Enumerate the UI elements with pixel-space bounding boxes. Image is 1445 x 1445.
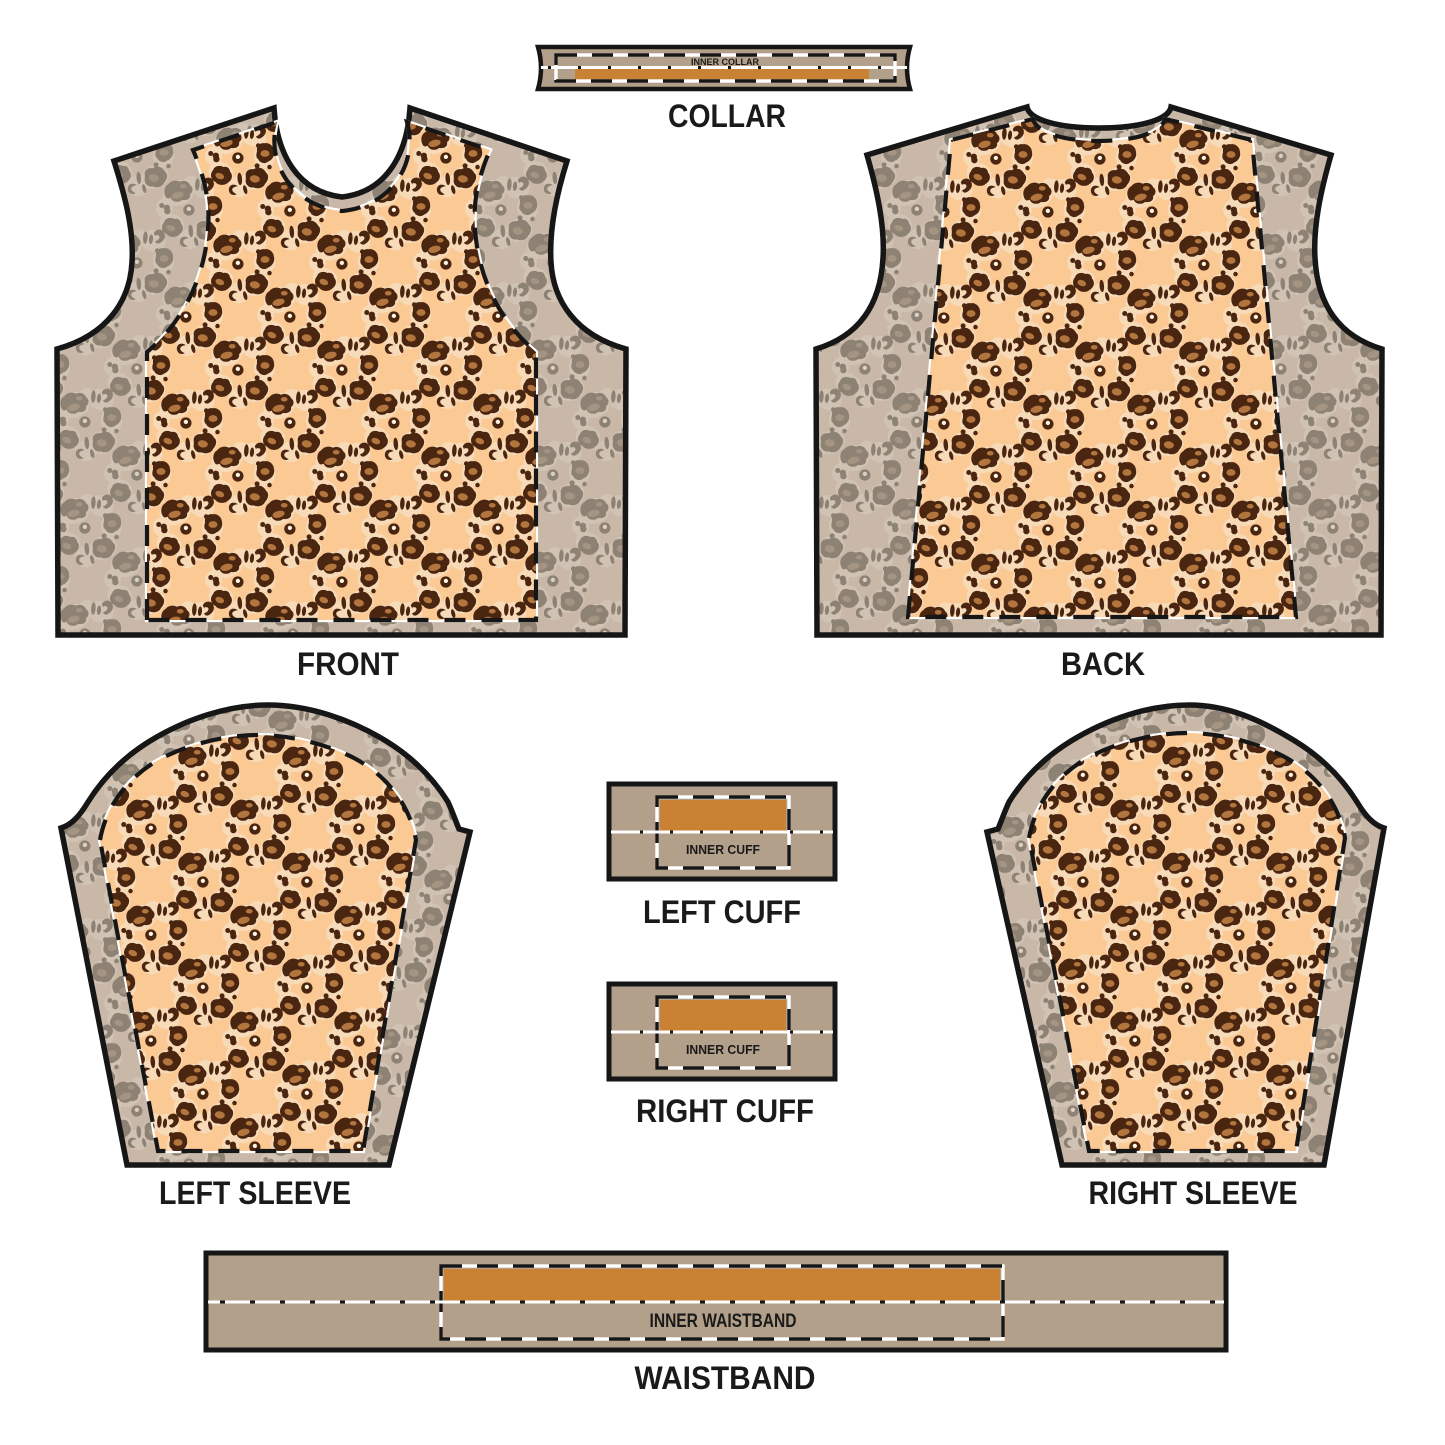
svg-text:RIGHT CUFF: RIGHT CUFF — [636, 1093, 814, 1129]
svg-text:FRONT: FRONT — [297, 646, 399, 682]
svg-text:INNER WAISTBAND: INNER WAISTBAND — [650, 1311, 797, 1332]
svg-text:INNER COLLAR: INNER COLLAR — [691, 57, 759, 67]
svg-text:RIGHT SLEEVE: RIGHT SLEEVE — [1089, 1175, 1298, 1211]
svg-text:LEFT SLEEVE: LEFT SLEEVE — [159, 1175, 351, 1211]
svg-text:BACK: BACK — [1061, 646, 1145, 682]
svg-text:LEFT CUFF: LEFT CUFF — [643, 894, 801, 930]
svg-text:INNER CUFF: INNER CUFF — [686, 1042, 760, 1057]
svg-text:COLLAR: COLLAR — [668, 98, 786, 134]
svg-text:WAISTBAND: WAISTBAND — [635, 1360, 816, 1396]
svg-text:INNER CUFF: INNER CUFF — [686, 842, 760, 857]
